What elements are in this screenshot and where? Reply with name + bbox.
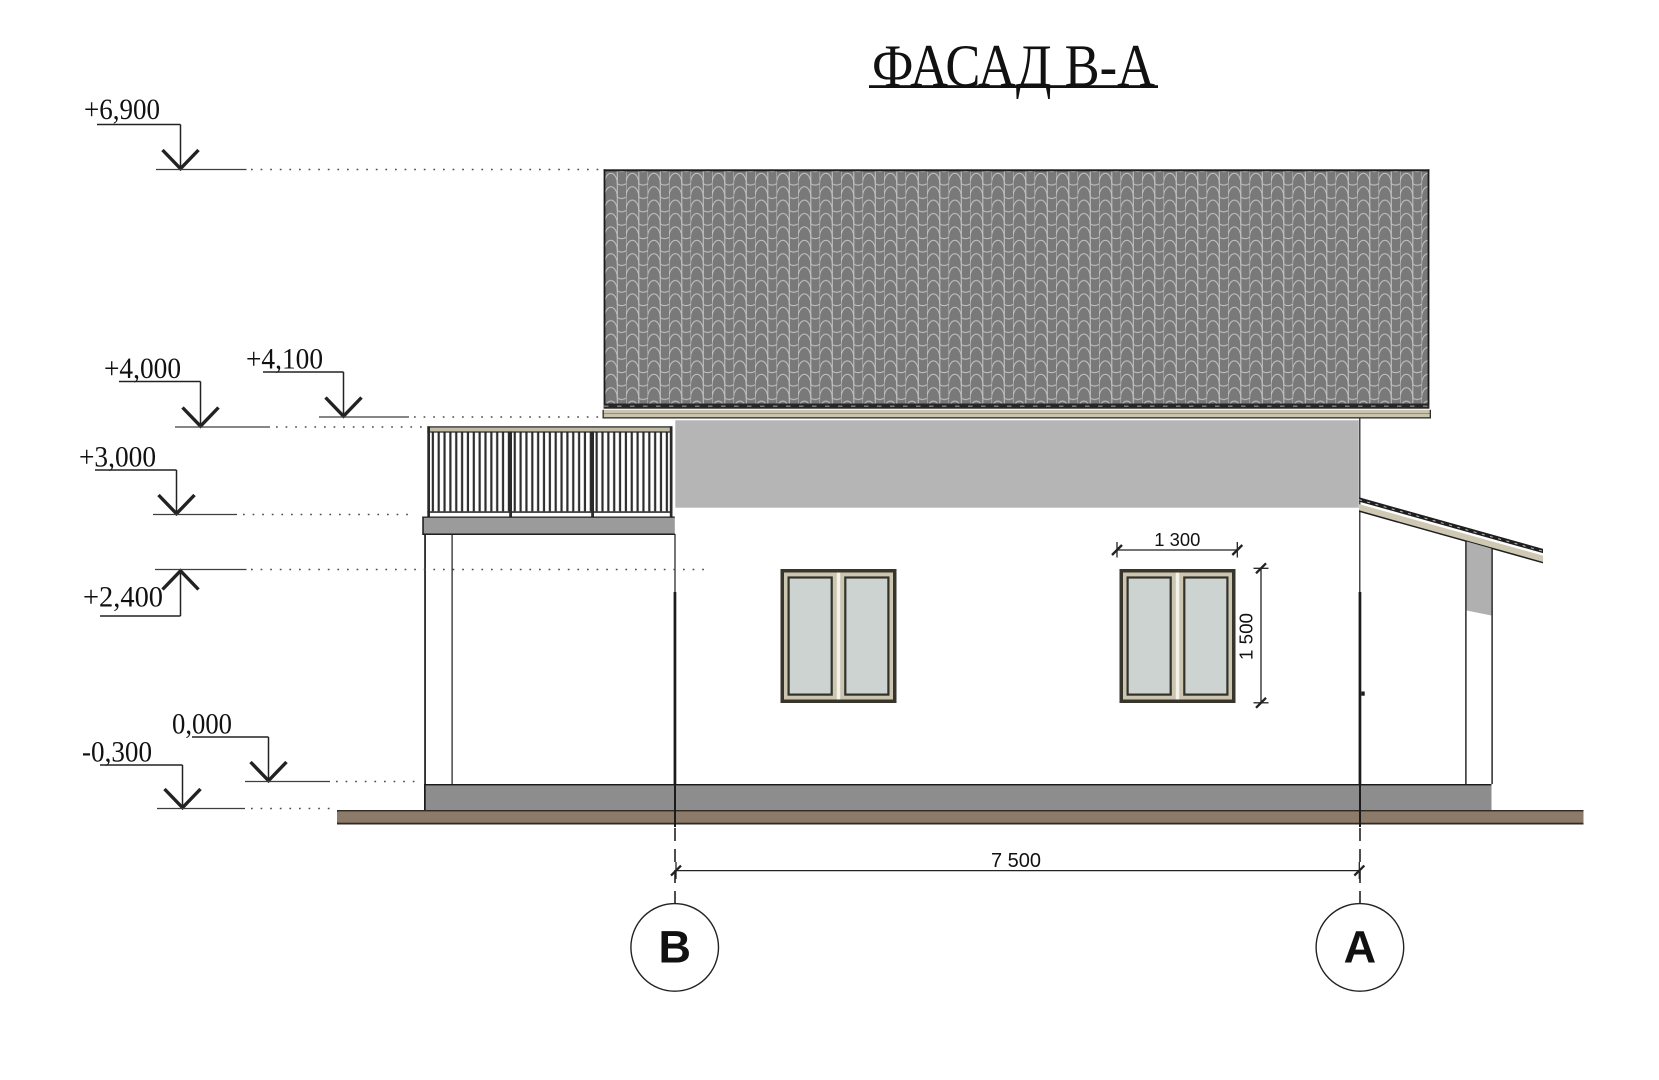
svg-text:+2,400: +2,400 <box>83 581 163 614</box>
svg-text:0,000: 0,000 <box>172 708 232 741</box>
svg-text:ФАСАД В-А: ФАСАД В-А <box>872 33 1155 99</box>
svg-text:+3,000: +3,000 <box>79 441 156 474</box>
svg-text:1 300: 1 300 <box>1154 530 1200 550</box>
svg-text:1 500: 1 500 <box>1237 613 1257 660</box>
svg-text:+4,100: +4,100 <box>246 343 323 376</box>
svg-text:-0,300: -0,300 <box>82 736 152 769</box>
svg-text:В: В <box>658 922 691 973</box>
svg-text:А: А <box>1344 922 1377 973</box>
svg-text:+4,000: +4,000 <box>104 352 181 385</box>
svg-text:7 500: 7 500 <box>991 849 1041 872</box>
svg-text:+6,900: +6,900 <box>84 93 160 126</box>
